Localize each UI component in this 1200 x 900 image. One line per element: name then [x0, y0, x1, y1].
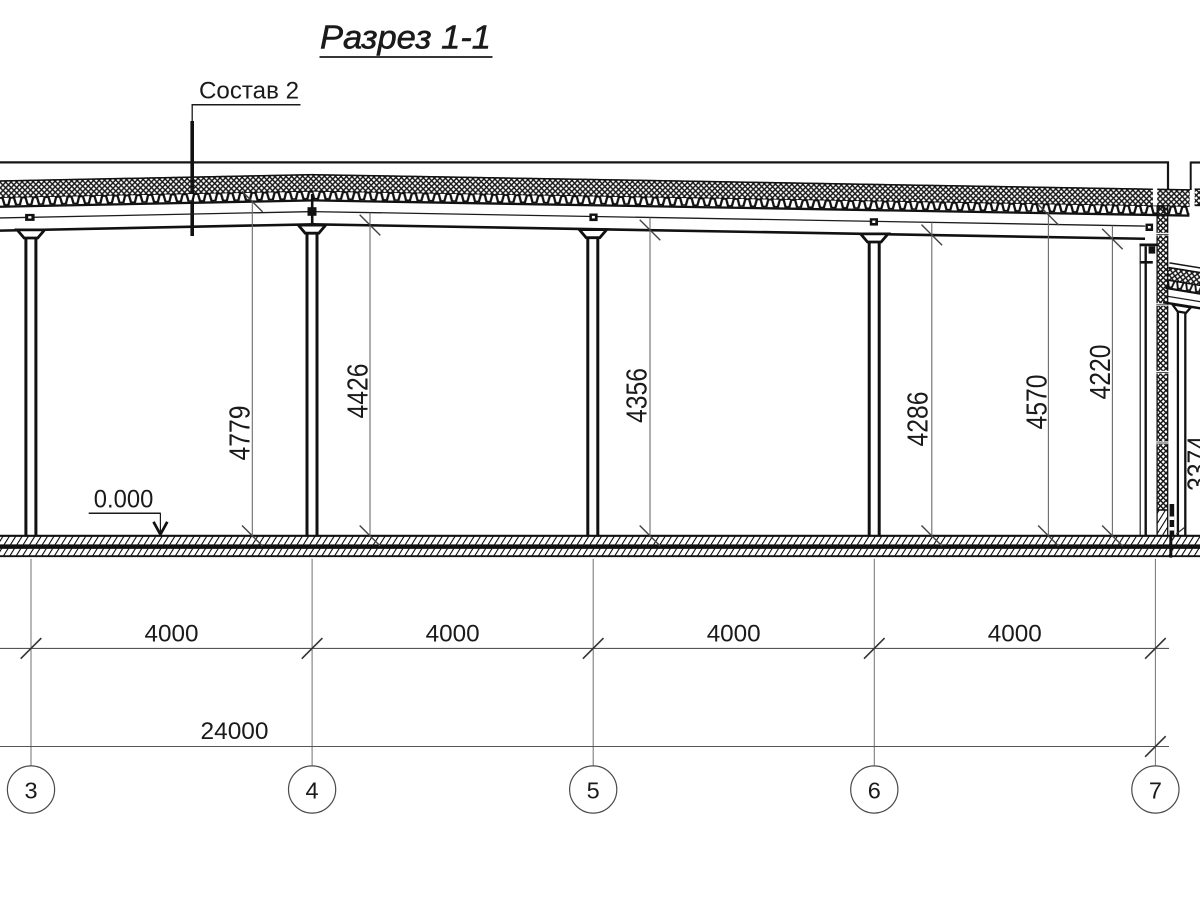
svg-text:4570: 4570 — [1022, 375, 1054, 430]
svg-text:4000: 4000 — [707, 620, 761, 647]
svg-text:3: 3 — [24, 777, 37, 803]
svg-text:7: 7 — [1149, 777, 1162, 803]
svg-text:5: 5 — [587, 777, 600, 803]
svg-text:3374: 3374 — [1183, 436, 1200, 491]
svg-text:6: 6 — [868, 777, 881, 803]
svg-text:4286: 4286 — [903, 392, 935, 447]
svg-text:Состав 2: Состав 2 — [199, 78, 299, 105]
svg-text:Разрез 1-1: Разрез 1-1 — [320, 19, 491, 56]
svg-text:0.000: 0.000 — [94, 487, 154, 514]
svg-text:24000: 24000 — [201, 718, 269, 745]
svg-text:4356: 4356 — [622, 368, 654, 423]
svg-text:4: 4 — [306, 777, 319, 803]
svg-text:4220: 4220 — [1085, 345, 1117, 400]
svg-text:4000: 4000 — [426, 620, 480, 647]
svg-text:4000: 4000 — [988, 620, 1042, 647]
svg-text:4426: 4426 — [343, 364, 375, 419]
svg-text:4779: 4779 — [225, 406, 257, 461]
svg-text:4000: 4000 — [145, 620, 199, 647]
